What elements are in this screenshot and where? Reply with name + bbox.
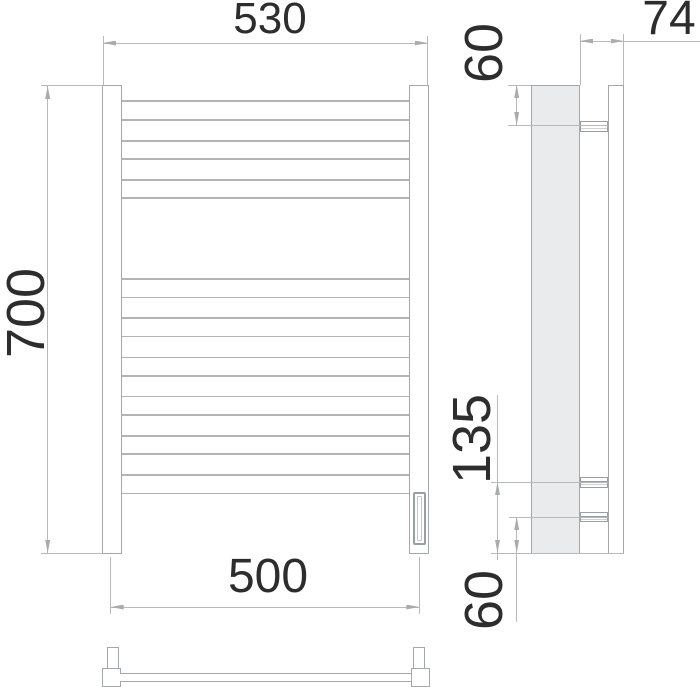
rung-line: [122, 453, 409, 455]
bottom-view-bar: [120, 673, 411, 683]
arrowhead-down-icon: [45, 540, 50, 553]
rung-line: [122, 179, 409, 181]
extension-line: [110, 557, 111, 614]
arrowhead-up-icon: [45, 86, 50, 99]
arrowhead-right-icon: [415, 41, 428, 46]
arrowhead-left-icon: [103, 41, 116, 46]
extension-line: [508, 125, 608, 126]
rung-line: [122, 336, 409, 338]
rung-line: [122, 357, 409, 359]
rung-line: [122, 375, 409, 377]
dimension-label-500: 500: [228, 553, 308, 601]
side-post-profile: [531, 85, 581, 554]
dimension-line: [111, 607, 420, 608]
rung-line: [122, 317, 409, 319]
stub-inner-line: [581, 484, 607, 485]
extension-line: [41, 85, 102, 86]
arrowhead-right-icon: [406, 605, 419, 610]
extension-line: [103, 36, 104, 85]
dimension-line: [580, 41, 700, 42]
arrowhead-left-icon: [111, 605, 124, 610]
right-post: [409, 85, 429, 554]
arrowhead-up-icon: [514, 517, 519, 530]
extension-line: [427, 36, 428, 85]
arrowhead-up-icon: [514, 85, 519, 98]
extension-line: [419, 557, 420, 614]
extension-line: [508, 85, 531, 86]
rung-line: [122, 158, 409, 160]
extension-line: [491, 482, 608, 483]
rung-line: [122, 297, 409, 299]
extension-line: [491, 553, 624, 554]
arrowhead-left-icon: [580, 39, 593, 44]
rung-line: [122, 197, 409, 199]
arrowhead-down-icon: [514, 112, 519, 125]
dimension-label-135: 135: [445, 394, 499, 484]
left-post: [102, 85, 122, 554]
bottom-view-right-block: [411, 668, 430, 687]
arrowhead-down-icon: [495, 540, 500, 553]
arrowhead-down-icon: [514, 540, 519, 553]
dimension-label-60-top: 60: [457, 23, 511, 83]
dimension-line: [103, 43, 428, 44]
dimension-label-700: 700: [0, 268, 53, 358]
dimension-label-530: 530: [233, 0, 306, 41]
extension-line: [509, 517, 608, 518]
dimension-line: [516, 517, 517, 622]
bottom-view-right-stem: [413, 647, 425, 670]
extension-line: [41, 553, 103, 554]
rung-line: [122, 100, 409, 102]
rung-line: [122, 278, 409, 280]
arrowhead-right-icon: [611, 39, 624, 44]
bottom-view-left-stem: [107, 647, 119, 670]
heating-element-box-inner: [417, 496, 423, 542]
rung-line: [122, 435, 409, 437]
dimension-line: [497, 395, 498, 560]
stub-inner-line: [581, 519, 607, 520]
dimension-line: [47, 86, 48, 553]
rung-line: [122, 396, 409, 398]
extension-line: [580, 34, 581, 85]
heating-element-box: [413, 492, 427, 546]
rung-line: [122, 119, 409, 121]
technical-drawing-canvas: 530 700 500 74 60: [0, 0, 700, 687]
rung-line: [122, 414, 409, 416]
rung-line: [122, 493, 409, 495]
rung-line: [122, 140, 409, 142]
bottom-view-left-block: [102, 668, 121, 687]
side-front-strip: [608, 85, 624, 554]
dimension-label-60-bottom: 60: [457, 570, 511, 630]
rung-line: [122, 474, 409, 476]
dimension-label-74: 74: [642, 0, 695, 43]
stub-inner-line: [581, 128, 607, 129]
extension-line: [623, 34, 624, 85]
